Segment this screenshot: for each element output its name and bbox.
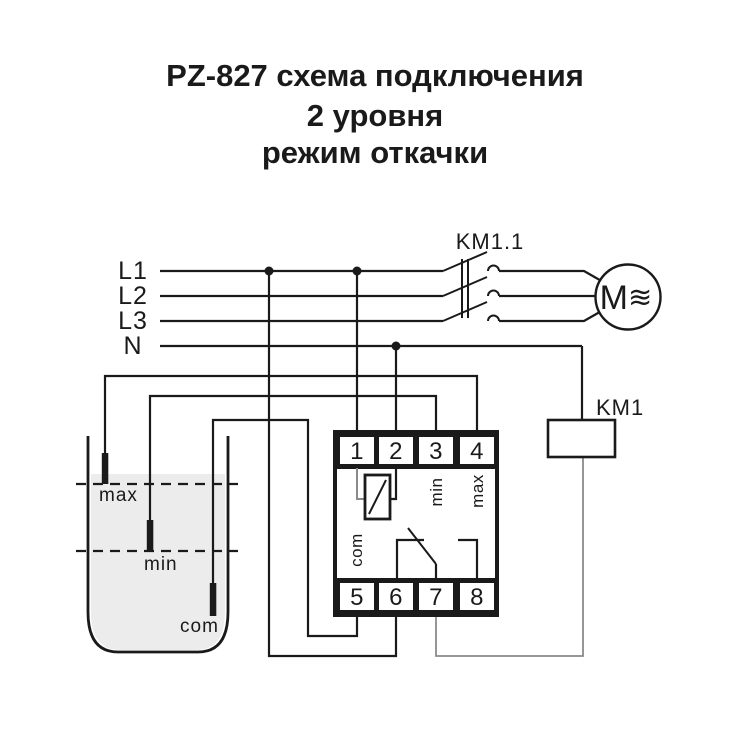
electrode-min — [147, 520, 154, 551]
terminal-2-label: 2 — [389, 438, 403, 465]
title-line-1: PZ-827 схема подключения — [166, 58, 584, 93]
relay-device: 1 2 3 4 5 6 7 8 min max com — [335, 432, 497, 615]
contact-terminal-arc — [488, 316, 499, 321]
tank-label-com: com — [180, 616, 219, 637]
terminal-6-label: 6 — [389, 584, 403, 611]
terminal-4-label: 4 — [470, 438, 484, 465]
label-l1: L1 — [118, 257, 148, 285]
contact-terminal-arc — [488, 266, 499, 272]
contact-blade — [443, 277, 487, 296]
terminal-1-label: 1 — [350, 438, 364, 465]
junction-dot — [392, 342, 401, 351]
title-line-3: режим откачки — [262, 135, 488, 170]
contact-terminal-arc — [488, 291, 499, 297]
junction-dot — [353, 267, 362, 276]
relay-label-com: com — [347, 533, 366, 567]
terminal-7-label: 7 — [429, 584, 443, 611]
junction-dot — [265, 267, 274, 276]
terminal-5-label: 5 — [350, 584, 364, 611]
power-line-labels: L1 L2 L3 N — [118, 257, 148, 360]
wiring-diagram-page: PZ-827 схема подключения 2 уровня режим … — [0, 0, 750, 750]
contactor-label: KM1.1 — [456, 229, 525, 254]
tank-label-min: min — [144, 554, 178, 575]
relay-label-max: max — [468, 474, 487, 508]
contact-blade — [443, 252, 487, 271]
wire-to-motor-1 — [499, 271, 605, 283]
motor: M≋ — [596, 265, 661, 330]
relay-label-min: min — [427, 478, 446, 507]
diagram-title: PZ-827 схема подключения 2 уровня режим … — [166, 58, 584, 170]
contact-blade — [443, 302, 487, 321]
terminal-3-label: 3 — [429, 438, 443, 465]
electrode-com — [210, 583, 217, 616]
label-l3: L3 — [118, 307, 148, 335]
wire-to-motor-3 — [499, 309, 605, 321]
km1-coil — [548, 420, 615, 457]
label-n: N — [123, 332, 142, 360]
motor-label: M≋ — [600, 279, 653, 317]
motor-m: M — [600, 279, 628, 317]
contactor-km11 — [443, 252, 605, 321]
label-l2: L2 — [118, 282, 148, 310]
tank-label-max: max — [99, 485, 138, 506]
wiring-diagram: PZ-827 схема подключения 2 уровня режим … — [0, 0, 750, 750]
km1-coil-label: KM1 — [596, 395, 644, 420]
electrode-max — [102, 453, 109, 484]
motor-wave-icon: ≋ — [628, 280, 652, 314]
terminal-8-label: 8 — [470, 584, 484, 611]
title-line-2: 2 уровня — [307, 98, 443, 133]
